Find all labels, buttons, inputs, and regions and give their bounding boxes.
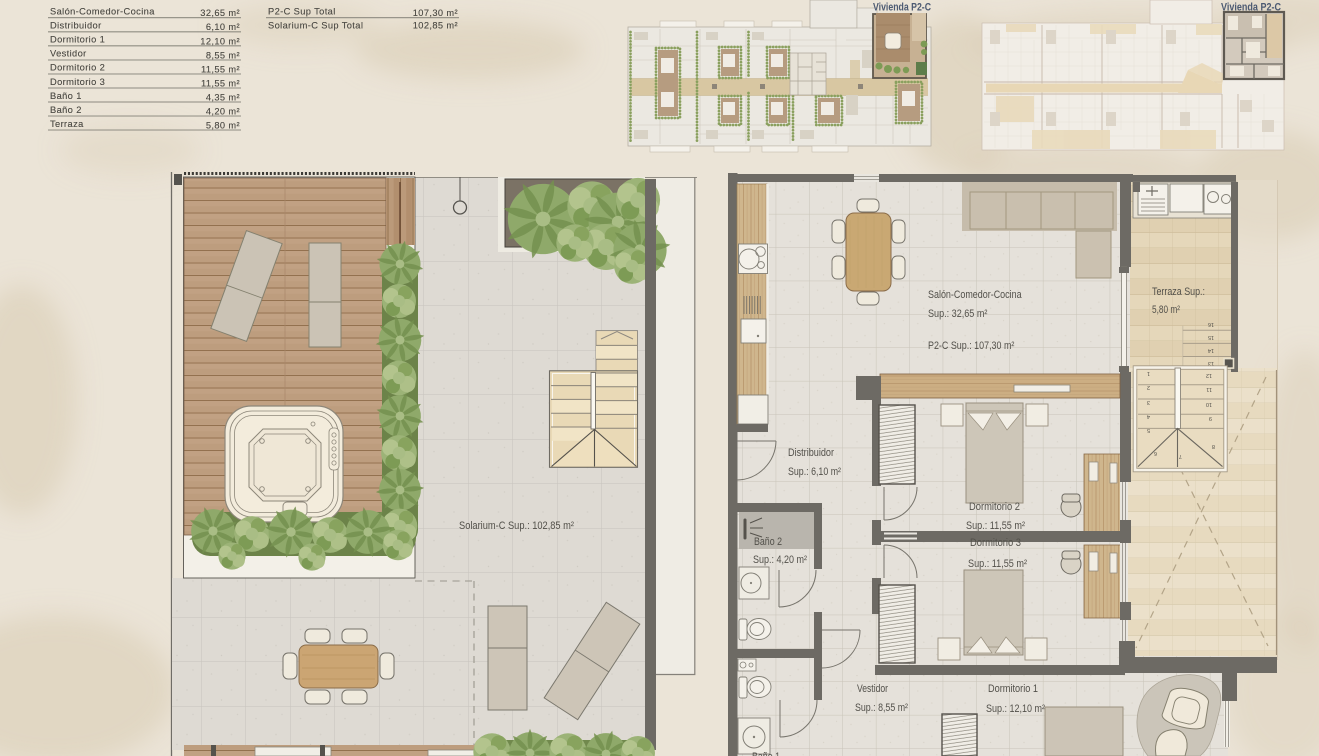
svg-text:4,35 m²: 4,35 m² — [206, 93, 240, 103]
svg-text:Distribuidor: Distribuidor — [788, 447, 834, 459]
svg-text:6,10 m²: 6,10 m² — [206, 22, 240, 32]
svg-text:102,85 m²: 102,85 m² — [413, 21, 458, 31]
svg-text:3: 3 — [1147, 399, 1150, 405]
svg-text:P2-C Sup Total: P2-C Sup Total — [268, 7, 336, 17]
svg-text:Baño 2: Baño 2 — [754, 536, 782, 548]
svg-text:Salón-Comedor-Cocina: Salón-Comedor-Cocina — [928, 289, 1022, 301]
svg-text:15: 15 — [1208, 334, 1214, 340]
svg-text:Sup.: 32,65 m²: Sup.: 32,65 m² — [928, 308, 988, 320]
svg-text:Terraza: Terraza — [50, 119, 84, 129]
svg-text:Sup.: 12,10 m²: Sup.: 12,10 m² — [986, 703, 1045, 715]
svg-text:Sup.: 11,55 m²: Sup.: 11,55 m² — [968, 558, 1027, 570]
svg-text:5,80 m²: 5,80 m² — [206, 121, 240, 131]
svg-text:Vestidor: Vestidor — [857, 683, 888, 695]
svg-text:8: 8 — [1212, 443, 1215, 449]
svg-text:32,65 m²: 32,65 m² — [200, 8, 240, 18]
svg-text:1: 1 — [1147, 370, 1150, 376]
svg-text:12,10 m²: 12,10 m² — [200, 36, 240, 46]
svg-text:5: 5 — [1147, 427, 1150, 433]
svg-text:Baño 1: Baño 1 — [50, 91, 82, 101]
svg-text:14: 14 — [1208, 347, 1214, 353]
svg-text:107,30 m²: 107,30 m² — [413, 8, 458, 18]
svg-text:7: 7 — [1179, 453, 1182, 459]
svg-text:P2-C Sup.: 107,30 m²: P2-C Sup.: 107,30 m² — [928, 340, 1015, 352]
svg-text:Dormitorio 3: Dormitorio 3 — [50, 77, 105, 87]
svg-text:10: 10 — [1206, 401, 1212, 407]
svg-text:Terraza Sup.:: Terraza Sup.: — [1152, 286, 1205, 298]
svg-text:11: 11 — [1206, 386, 1212, 392]
svg-text:12: 12 — [1206, 372, 1212, 378]
svg-text:9: 9 — [1209, 415, 1212, 421]
svg-text:11,55 m²: 11,55 m² — [201, 79, 240, 89]
svg-text:4: 4 — [1147, 413, 1150, 419]
svg-text:Sup.: 4,20 m²: Sup.: 4,20 m² — [753, 554, 807, 566]
svg-text:Sup.: 6,10 m²: Sup.: 6,10 m² — [788, 466, 841, 478]
svg-text:Baño 1: Baño 1 — [752, 751, 780, 756]
svg-text:Solarium-C Sup Total: Solarium-C Sup Total — [268, 21, 363, 31]
svg-text:Dormitorio 1: Dormitorio 1 — [50, 35, 105, 45]
svg-text:Vivienda P2-C: Vivienda P2-C — [1221, 2, 1281, 14]
svg-text:6: 6 — [1154, 450, 1157, 456]
svg-text:Sup.: 11,55 m²: Sup.: 11,55 m² — [966, 520, 1025, 532]
svg-text:Vestidor: Vestidor — [50, 49, 87, 59]
svg-text:13: 13 — [1208, 360, 1214, 366]
svg-text:16: 16 — [1208, 321, 1214, 327]
svg-text:Dormitorio 2: Dormitorio 2 — [50, 63, 105, 73]
svg-text:4,20 m²: 4,20 m² — [206, 107, 240, 117]
svg-text:Dormitorio 2: Dormitorio 2 — [969, 501, 1020, 513]
svg-text:Dormitorio 1: Dormitorio 1 — [988, 683, 1038, 695]
svg-text:8,55 m²: 8,55 m² — [206, 50, 240, 60]
svg-text:11,55 m²: 11,55 m² — [201, 64, 240, 74]
svg-text:Solarium-C Sup.: 102,85 m²: Solarium-C Sup.: 102,85 m² — [459, 520, 574, 532]
svg-text:5,80 m²: 5,80 m² — [1152, 304, 1180, 316]
svg-text:Baño 2: Baño 2 — [50, 105, 82, 115]
svg-text:Vivienda P2-C: Vivienda P2-C — [873, 2, 931, 14]
svg-text:Sup.: 8,55 m²: Sup.: 8,55 m² — [855, 702, 908, 714]
svg-text:Salón-Comedor-Cocina: Salón-Comedor-Cocina — [50, 7, 155, 17]
svg-text:2: 2 — [1147, 384, 1150, 390]
svg-text:Dormitorio 3: Dormitorio 3 — [970, 537, 1021, 549]
svg-text:Distribuidor: Distribuidor — [50, 21, 102, 31]
